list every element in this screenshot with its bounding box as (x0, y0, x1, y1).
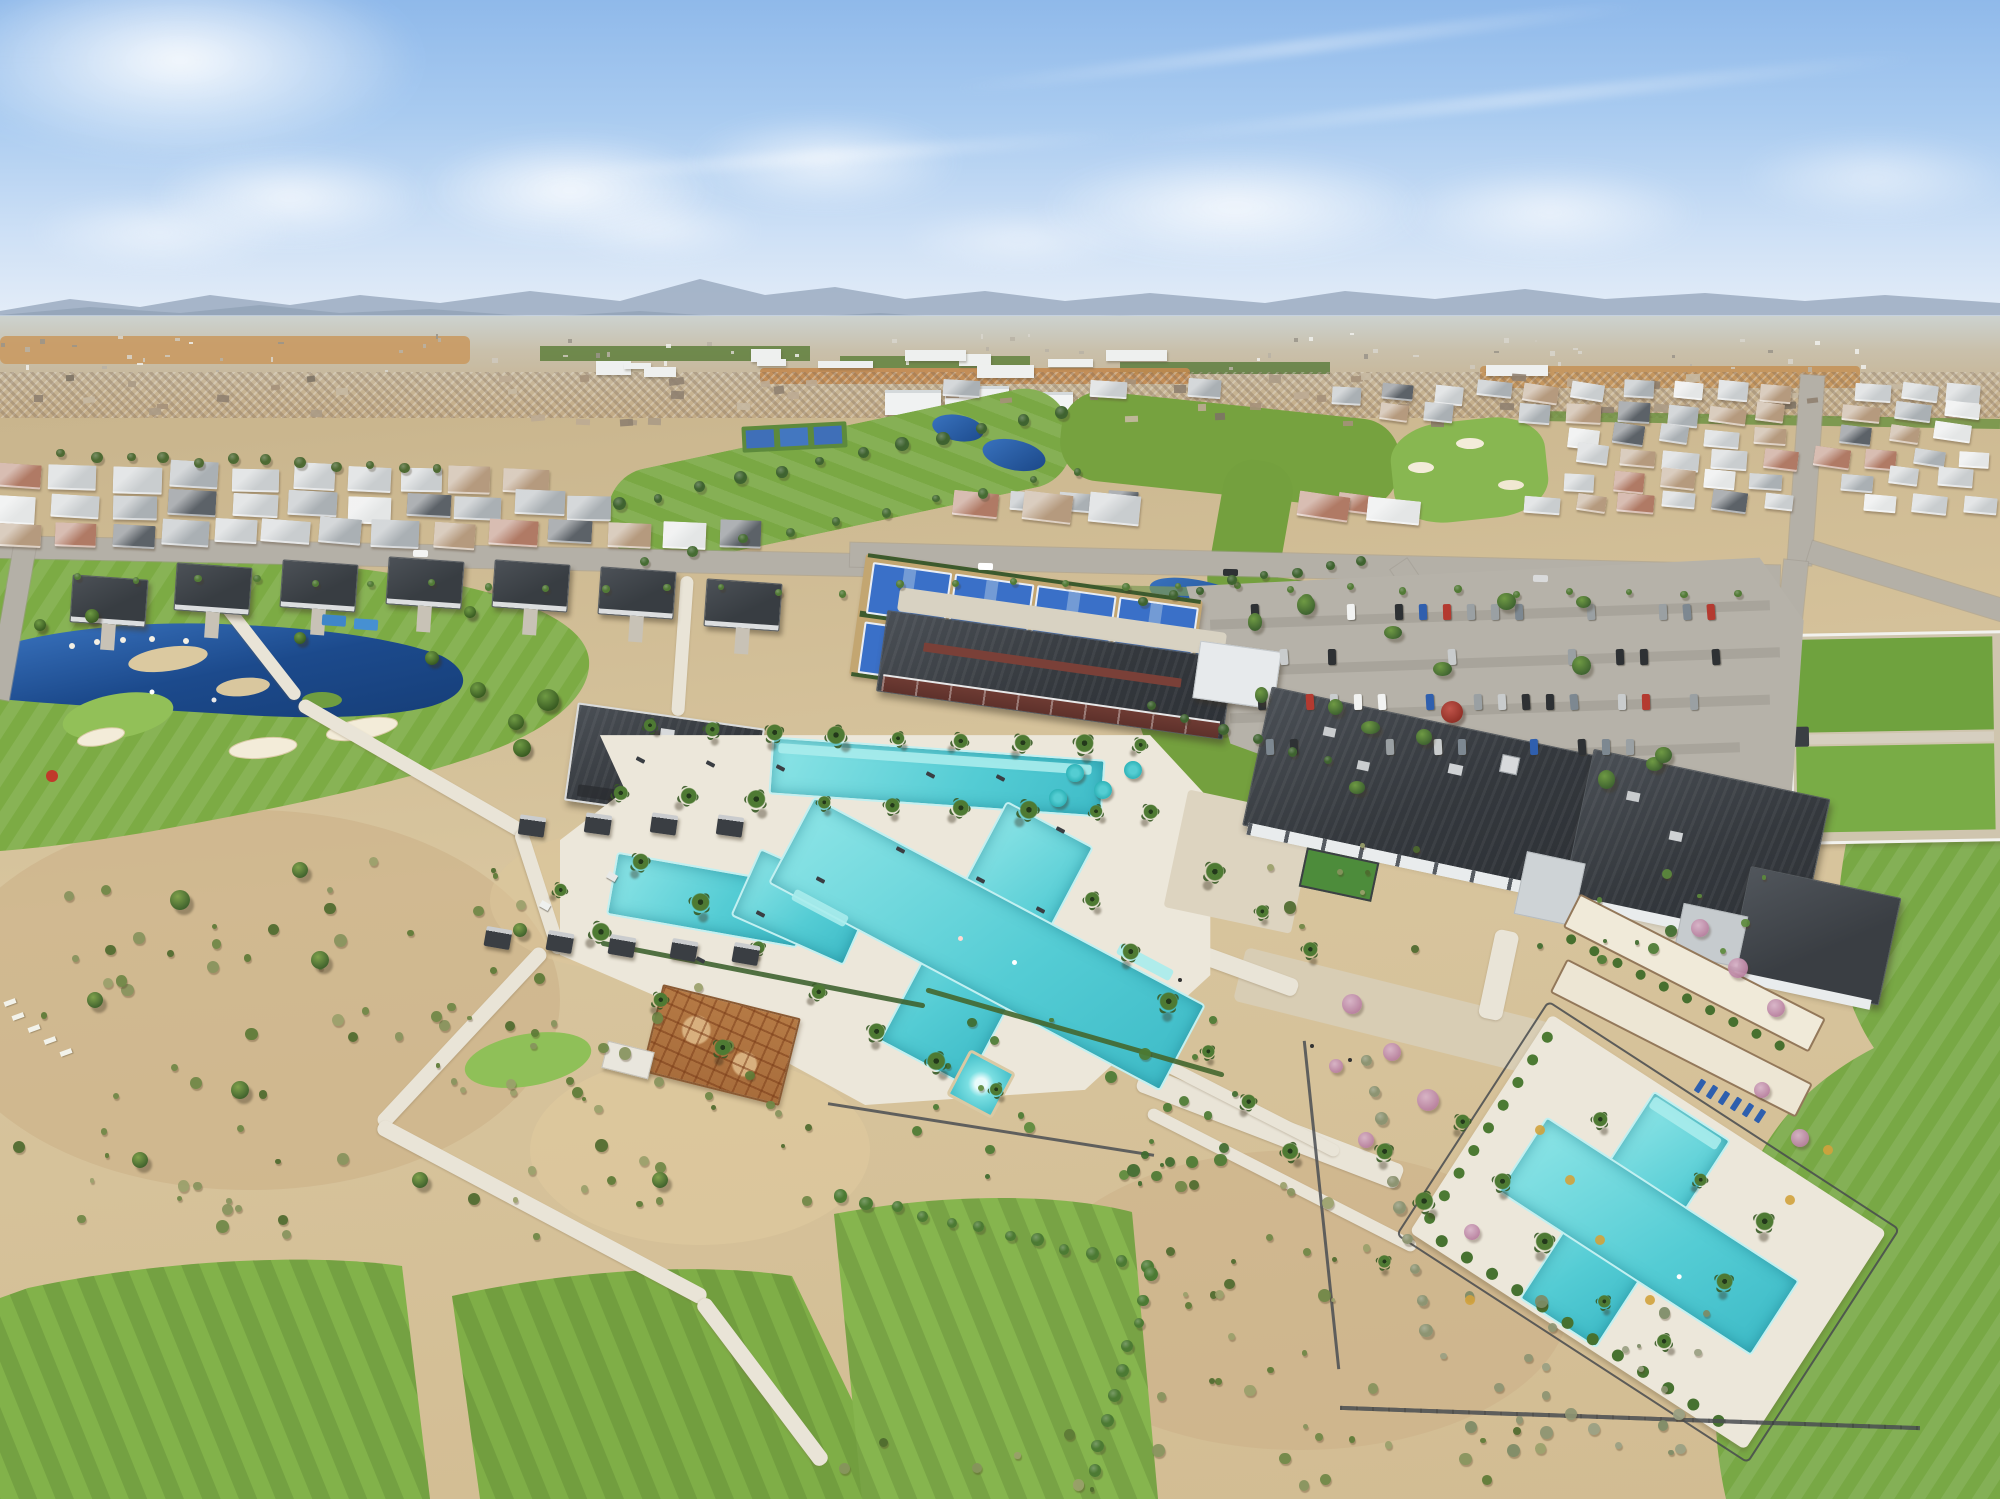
street-tree (839, 590, 846, 597)
palm-tree (1655, 1333, 1672, 1350)
desert-shrub (1459, 1453, 1472, 1466)
house (1613, 471, 1645, 495)
desert-shrub (1138, 1181, 1142, 1185)
desert-shrub (1360, 843, 1365, 848)
corridor-tree (815, 457, 824, 466)
distant-house-roof (1512, 373, 1527, 381)
parked-car (1491, 604, 1500, 620)
lawn-hedge (1121, 1340, 1133, 1352)
street-tree (1175, 583, 1181, 589)
house (1959, 451, 1990, 469)
house (1840, 474, 1874, 494)
house (1381, 383, 1414, 402)
house (371, 519, 420, 549)
corridor-tree (694, 481, 705, 492)
desert-shrub (490, 967, 497, 974)
parked-car (1690, 694, 1699, 710)
yellow-shrub (1535, 1125, 1545, 1135)
house (1659, 423, 1689, 445)
desert-shrub (362, 1007, 370, 1015)
desert-shrub (1024, 1122, 1035, 1133)
backyard-pool (354, 618, 379, 631)
pink-flowering-tree (1417, 1089, 1439, 1111)
lawn-hedge (1031, 1233, 1044, 1246)
desert-shrub (1565, 1408, 1577, 1420)
street-tree (1399, 587, 1406, 594)
palm-tree (1590, 1110, 1611, 1131)
distant-house-roof (128, 381, 137, 388)
desert-shrub (1661, 1386, 1668, 1393)
house (48, 464, 96, 491)
desert-shrub (530, 1043, 537, 1050)
desert-shrub (190, 1077, 202, 1089)
desert-shrub (1535, 1295, 1548, 1308)
lawn-hedge (834, 1189, 847, 1202)
desert-shrub (598, 1043, 608, 1053)
house (1963, 496, 1997, 516)
pink-flowering-tree (1754, 1082, 1770, 1098)
desert-shrub (133, 932, 144, 943)
palm-tree (1711, 1269, 1736, 1294)
field-tree (157, 452, 169, 464)
desert-shrub (1228, 1333, 1236, 1341)
golf-cart (606, 870, 618, 881)
house (1576, 442, 1610, 466)
desert-shrub (766, 1101, 775, 1110)
desert-shrub (436, 1063, 440, 1067)
desert-shrub (1337, 869, 1343, 875)
desert-shrub (1603, 939, 1607, 943)
distant-house-roof (1686, 374, 1700, 382)
pool-lounger (705, 760, 715, 768)
desert-shrub (1073, 1479, 1085, 1491)
lawn-hedge (859, 1197, 873, 1211)
parked-car (1626, 739, 1634, 755)
distant-house-roof (620, 418, 634, 426)
street-tree (133, 577, 140, 584)
street-tree (312, 580, 320, 588)
distant-house-roof (1174, 385, 1186, 393)
desert-shrub (636, 1201, 642, 1207)
street-tree (367, 581, 374, 588)
desert-shrub (1658, 1420, 1669, 1431)
desert-shrub (369, 857, 378, 866)
desert-shrub (879, 1438, 888, 1447)
desert-shrub (451, 1078, 457, 1084)
desert-shrub (745, 1071, 755, 1081)
desert-shrub (113, 1093, 120, 1100)
desert-shrub (1668, 1450, 1673, 1455)
house (1711, 489, 1748, 514)
desert-shrub (268, 924, 279, 935)
desert-shrub (1516, 1416, 1523, 1423)
house (1888, 465, 1919, 487)
model-home (597, 566, 676, 619)
field-tree (260, 454, 271, 465)
house (113, 496, 157, 520)
palm-tree (988, 1082, 1005, 1099)
desert-shrub (105, 1153, 110, 1158)
house (1813, 446, 1852, 471)
house (1755, 401, 1786, 423)
driveway (734, 628, 750, 655)
parking-tree (1248, 613, 1263, 631)
palm-tree (678, 786, 698, 806)
parked-car (1434, 739, 1443, 755)
desert-shrub (1622, 1346, 1629, 1353)
desert-shrub (1440, 1353, 1446, 1359)
desert-shrub (1049, 1018, 1054, 1023)
desert-shrub (1542, 1391, 1550, 1399)
house (1708, 405, 1746, 426)
desert-shrub (775, 1110, 782, 1117)
parked-car (1546, 694, 1554, 710)
house (1089, 380, 1127, 399)
palm-tree (611, 784, 629, 802)
desert-shrub (77, 1215, 86, 1224)
desert-shrub (1105, 1071, 1117, 1083)
desert-shrub (1157, 1392, 1166, 1401)
house (433, 522, 476, 551)
palm-tree (952, 733, 969, 750)
desert-shrub (1480, 1438, 1485, 1443)
corridor-tree (978, 488, 989, 499)
house (514, 489, 565, 516)
lawn-hedge (1101, 1414, 1114, 1427)
desert-shrub (1548, 1323, 1558, 1333)
lawn-hedge (1144, 1267, 1158, 1281)
house (1331, 386, 1361, 405)
corridor-tree (1288, 747, 1298, 757)
pink-flowering-tree (1383, 1043, 1401, 1061)
distant-house-roof (671, 390, 684, 398)
street-tree (485, 583, 493, 591)
desert-shrub (1192, 1054, 1198, 1060)
house (1839, 424, 1872, 446)
house (607, 522, 651, 549)
distant-house-roof (1317, 395, 1327, 403)
cabana (483, 926, 512, 950)
house (1901, 382, 1939, 404)
house (1021, 490, 1073, 524)
house (1188, 378, 1222, 399)
desert-shrub (1209, 1016, 1217, 1024)
palm-tree (1011, 732, 1034, 755)
house (0, 523, 42, 548)
house (1764, 493, 1794, 512)
desert-shrub (619, 1047, 632, 1060)
corridor-tree (882, 508, 891, 517)
corridor-tree (976, 423, 987, 434)
distant-house-roof (1125, 416, 1138, 422)
house (1518, 403, 1550, 426)
desert-shrub (705, 1092, 713, 1100)
cabana (518, 814, 547, 837)
desert-shrub (1127, 1164, 1140, 1177)
distant-house-roof (737, 403, 750, 411)
desert-shrub (1365, 870, 1371, 876)
street-tree (253, 575, 260, 582)
desert-shrub (212, 939, 222, 949)
desert-shrub (1673, 1409, 1685, 1421)
desert-shrub (972, 1463, 983, 1474)
desert-shrub (1588, 1423, 1600, 1435)
palm-tree (1237, 1091, 1258, 1112)
parked-car (1706, 604, 1715, 621)
golf-cart (539, 899, 551, 910)
parking-tree (1361, 721, 1380, 734)
distant-house-roof (1343, 421, 1353, 426)
pink-flowering-tree (1791, 1129, 1809, 1147)
distant-house-roof (217, 395, 230, 403)
desert-shrub (551, 1020, 557, 1026)
palm-tree (650, 990, 670, 1010)
desert-shrub (1231, 1259, 1237, 1265)
parked-car (1279, 649, 1288, 666)
sage-hedge (1387, 1176, 1398, 1187)
desert-shrub (581, 1185, 588, 1192)
desert-shrub (1703, 1310, 1710, 1317)
desert-shrub (967, 1018, 976, 1027)
palm-tree (1489, 1169, 1514, 1194)
palm-tree (1154, 988, 1182, 1016)
house (288, 490, 338, 518)
yellow-shrub (1565, 1175, 1575, 1185)
pedestrian (1310, 1044, 1314, 1048)
white-lounger (4, 998, 17, 1007)
desert-shrub (1064, 1429, 1075, 1440)
parked-car (1266, 739, 1275, 755)
desert-shrub (101, 1128, 107, 1134)
desert-tree (87, 992, 103, 1008)
house (951, 489, 998, 518)
lawn-hedge (892, 1201, 903, 1212)
house (1763, 448, 1799, 472)
corridor-tree (932, 495, 939, 502)
house (1522, 383, 1560, 406)
house (1932, 421, 1971, 444)
desert-shrub (1411, 945, 1419, 953)
house (348, 466, 392, 493)
pool-lounger (895, 846, 905, 854)
desert-shrub (505, 1021, 516, 1032)
desert-tree (132, 1152, 148, 1168)
distant-house-roof (1215, 413, 1225, 420)
desert-shrub (566, 1077, 574, 1085)
house (51, 494, 101, 520)
distant-house-roof (310, 410, 322, 418)
model-home (173, 562, 252, 615)
desert-shrub (1214, 1154, 1227, 1167)
house (1889, 424, 1920, 445)
distant-house-roof (271, 384, 280, 390)
house (1711, 449, 1748, 471)
shore-tree (464, 606, 476, 618)
desert-shrub (1615, 1442, 1622, 1449)
desert-shrub (510, 1089, 517, 1096)
distant-house-roof (499, 375, 513, 381)
desert-shrub (933, 1104, 939, 1110)
palm-tree (1070, 730, 1097, 757)
house (447, 466, 490, 495)
desert-shrub (324, 903, 335, 914)
desert-shrub (531, 1029, 539, 1037)
desert-shrub (1385, 1441, 1393, 1449)
parked-car (1377, 694, 1386, 711)
palm-tree (890, 731, 906, 747)
model-home (385, 556, 464, 609)
desert-shrub (1537, 943, 1543, 949)
distant-house-roof (1654, 403, 1669, 412)
distant-house-roof (1269, 375, 1282, 383)
street-tree (602, 585, 610, 593)
palm-tree (1140, 802, 1161, 823)
desert-shrub (1204, 1111, 1213, 1120)
field-tree (127, 453, 136, 462)
pool-lounger (975, 876, 985, 884)
corridor-tree (1018, 414, 1029, 425)
desert-shrub (1267, 1367, 1273, 1373)
sage-hedge (1393, 1201, 1406, 1214)
corridor-tree (687, 546, 697, 556)
desert-shrub (101, 885, 111, 895)
desert-shrub (1322, 1197, 1334, 1209)
palm-tree (1530, 1228, 1558, 1256)
corridor-tree (1326, 561, 1335, 570)
house (1423, 401, 1454, 423)
house (112, 523, 155, 548)
parked-car (1577, 739, 1586, 756)
palm-tree (643, 719, 657, 733)
lawn-hedge (917, 1211, 928, 1222)
desert-shrub (1349, 1436, 1356, 1443)
red-yard-art (46, 770, 58, 782)
street-tree (1010, 578, 1017, 585)
desert-shrub (1513, 1427, 1521, 1435)
pool-lounger (995, 774, 1005, 782)
pool-lounger (925, 771, 935, 779)
desert-shrub (235, 1205, 242, 1212)
shore-tree (537, 689, 559, 711)
desert-shrub (1141, 1151, 1149, 1159)
sage-hedge (1375, 1112, 1388, 1125)
parking-tree (1572, 656, 1591, 675)
distant-house-roof (1294, 391, 1309, 399)
cabana (607, 934, 636, 958)
desert-shrub (1189, 1180, 1199, 1190)
parked-car (1530, 739, 1539, 755)
distant-house-roof (806, 380, 817, 387)
palm-tree (761, 720, 786, 745)
desert-shrub (654, 1077, 664, 1087)
corridor-tree (776, 466, 788, 478)
desert-shrub (985, 1145, 994, 1154)
corridor-tree (1218, 724, 1229, 735)
parking-tree (1297, 595, 1315, 615)
desert-shrub (226, 1198, 231, 1203)
street-tree (1734, 590, 1742, 598)
driveway (100, 624, 116, 651)
cabana (669, 938, 698, 962)
desert-shrub (193, 1182, 201, 1190)
house (943, 379, 981, 398)
desert-shrub (1318, 1289, 1331, 1302)
pink-flowering-tree (1767, 999, 1785, 1017)
parked-car (1328, 649, 1336, 665)
desert-shrub (513, 1197, 519, 1203)
house (1911, 493, 1948, 515)
corridor-tree (1260, 571, 1268, 579)
desert-shrub (216, 1220, 229, 1233)
palm-tree (709, 1035, 734, 1060)
desert-shrub (1160, 1163, 1164, 1167)
desert-shrub (805, 1124, 812, 1131)
street-tree (952, 580, 959, 587)
shore-tree (513, 739, 531, 757)
moving-car (412, 549, 427, 556)
desert-shrub (13, 1141, 25, 1153)
desert-shrub (447, 1003, 455, 1011)
desert-shrub (1597, 897, 1602, 902)
desert-shrub (222, 1204, 233, 1215)
desert-shrub (781, 1144, 785, 1148)
parked-car (1458, 739, 1466, 755)
desert-shrub (1648, 943, 1660, 955)
cabana (584, 812, 613, 835)
blue-lounger (1706, 1084, 1719, 1099)
house (1379, 402, 1409, 422)
desert-shrub (1665, 925, 1677, 937)
desert-shrub (1331, 1298, 1335, 1302)
parked-car (1682, 604, 1691, 621)
palm-tree (1201, 859, 1227, 885)
corridor-tree (1169, 590, 1178, 599)
desert-shrub (1185, 1302, 1192, 1309)
parked-car (1616, 649, 1625, 665)
desert-shrub (1149, 1139, 1154, 1144)
street-tree (1287, 586, 1295, 594)
distant-house-roof (307, 375, 316, 382)
house (406, 493, 451, 518)
parked-car (1474, 694, 1483, 710)
desert-shrub (327, 887, 333, 893)
palm-tree (1089, 805, 1104, 820)
palm-tree (809, 983, 828, 1002)
distant-house-roof (580, 375, 590, 383)
pink-flowering-tree (1342, 994, 1362, 1014)
house (214, 518, 257, 545)
pink-flowering-tree (1464, 1224, 1480, 1240)
distant-house-roof (1361, 373, 1371, 381)
distant-house-roof (761, 381, 770, 388)
desert-shrub (245, 1028, 257, 1040)
house (1617, 401, 1650, 424)
parking-tree (1328, 699, 1343, 715)
desert-shrub (1368, 1383, 1378, 1393)
desert-shrub (985, 1174, 990, 1179)
desert-shrub (72, 955, 79, 962)
desert-shrub (1303, 1424, 1308, 1429)
desert-shrub (460, 1087, 466, 1093)
desert-shrub (1280, 1182, 1287, 1189)
desert-shrub (1232, 1091, 1238, 1097)
corridor-tree (640, 557, 649, 566)
desert-shrub (639, 1156, 649, 1166)
house (1660, 467, 1696, 490)
desert-shrub (1720, 948, 1726, 954)
lawn-hedge (1116, 1364, 1129, 1377)
corridor-tree (1356, 556, 1367, 567)
